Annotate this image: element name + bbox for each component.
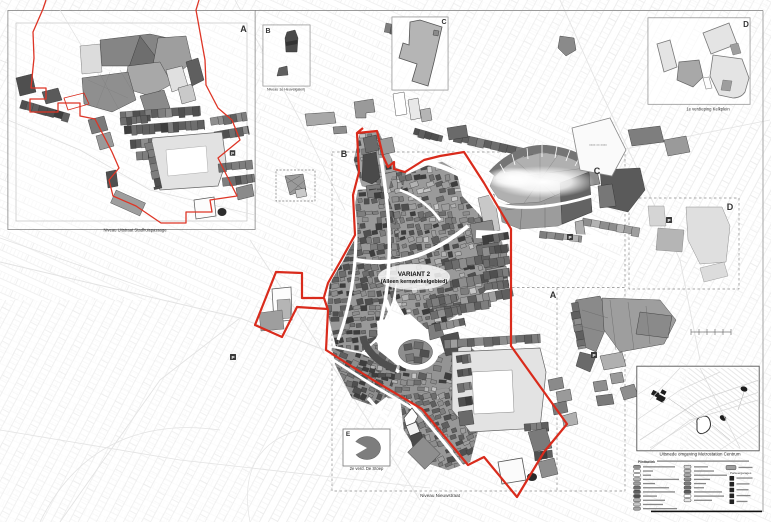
svg-text:2e verd. De Stoep: 2e verd. De Stoep xyxy=(350,466,384,471)
svg-text:P: P xyxy=(231,151,234,156)
svg-text:(Alleen kernwinkelgebied): (Alleen kernwinkelgebied) xyxy=(381,279,448,285)
svg-text:1e verdieping Kelkplein: 1e verdieping Kelkplein xyxy=(686,107,730,112)
svg-text:Uitsnede omgeving Metrostation: Uitsnede omgeving Metrostation Centrum xyxy=(659,452,740,457)
svg-text:Niveau Uitstraat Stadhuispassa: Niveau Uitstraat Stadhuispassage xyxy=(103,228,167,233)
svg-text:D: D xyxy=(743,20,749,29)
svg-text:A: A xyxy=(240,24,247,34)
svg-text:B: B xyxy=(341,149,348,159)
svg-text:P: P xyxy=(592,353,595,358)
svg-text:Niveau 1e Heuvelgalerij: Niveau 1e Heuvelgalerij xyxy=(267,88,305,92)
svg-text:C: C xyxy=(594,166,601,176)
svg-text:C: C xyxy=(441,19,446,26)
svg-text:P: P xyxy=(667,218,670,223)
svg-text:P: P xyxy=(568,235,571,240)
svg-text:E: E xyxy=(346,431,351,438)
svg-text:Niveau Nieuwstraat: Niveau Nieuwstraat xyxy=(420,493,461,498)
svg-text:B: B xyxy=(265,28,270,35)
svg-text:D: D xyxy=(727,202,734,212)
svg-text:VARIANT 2: VARIANT 2 xyxy=(398,271,431,278)
svg-text:xxxx xx xxxx: xxxx xx xxxx xyxy=(589,143,607,147)
svg-text:A: A xyxy=(550,290,557,300)
svg-text:P: P xyxy=(231,355,234,360)
svg-text:Parkeergarages: Parkeergarages xyxy=(730,471,752,475)
svg-text:Plinttactiek: Plinttactiek xyxy=(638,460,655,464)
